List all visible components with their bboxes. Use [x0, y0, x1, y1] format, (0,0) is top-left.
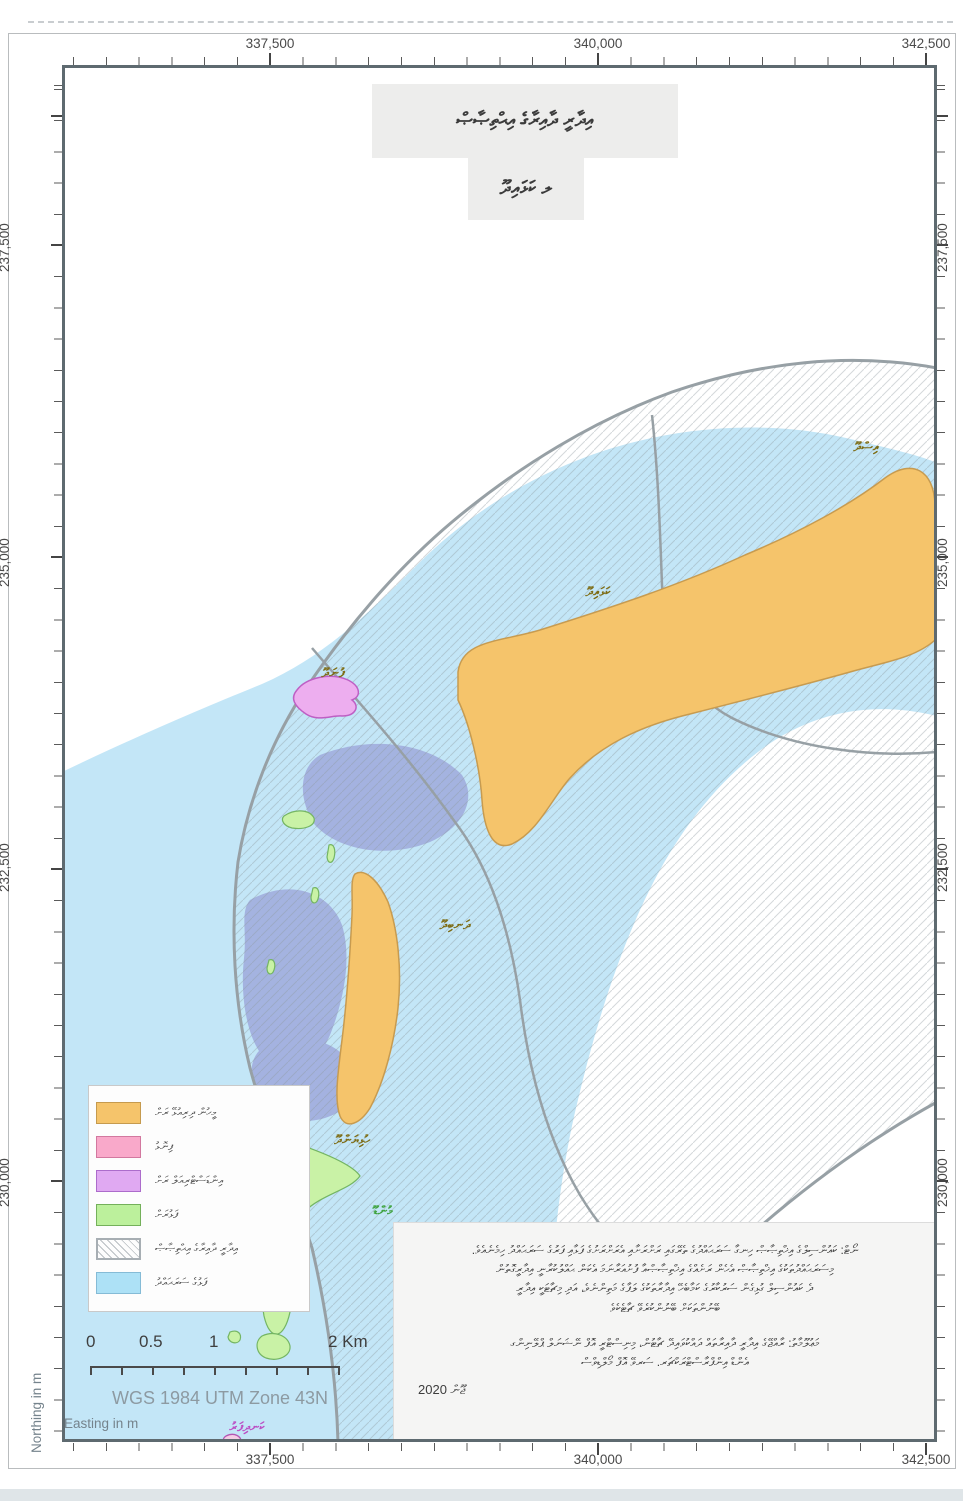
scale-tick-0: 0 [86, 1332, 95, 1352]
inhabited-island-swatch [96, 1102, 141, 1124]
note-line: ނޯޓް: ކައުންސިލްގެ އިޚްތިޞާޞް ހިނގާ ސަރަ… [416, 1241, 914, 1260]
island-label-mundoo: މުންޑޫ [373, 1203, 392, 1219]
easting-label-top-3: 342,500 [890, 36, 962, 51]
scale-bar-ticks [90, 1366, 341, 1375]
map-subtitle-box: ލ ކަޅައިދޫ [468, 158, 584, 220]
northing-label-right-2: 235,000 [935, 538, 950, 587]
legend-label: އިންޑަސްޓްރިއަލް ރަށް [155, 1175, 223, 1188]
island-label-hulhiyandhoo: ހުޅިޔަންދޫ [334, 1132, 370, 1148]
scale-tick-2km: 2 Km [328, 1332, 368, 1352]
northing-label-right-3: 232,500 [935, 843, 950, 892]
crs-label: WGS 1984 UTM Zone 43N [95, 1388, 345, 1409]
jurisdiction-swatch [96, 1238, 141, 1260]
source-line: އެންޑް އިންފްރާސްޓްރަކްޗަރ. ސަރވޭ އޮފް މ… [416, 1353, 914, 1372]
legend-label: ފަޅުގެ ސަރަޙައްދު [155, 1277, 207, 1290]
left-ruler-major-ticks [51, 65, 62, 1442]
northing-label-left-1: 237,500 [0, 223, 12, 272]
easting-axis-title: Easting in m [64, 1416, 138, 1431]
scale-tick-1: 1 [209, 1332, 218, 1352]
legend-label: އިދާރީ ދާއިރާގެ އިޙްތިޞާޞް [155, 1243, 238, 1256]
sandbank-swatch [96, 1136, 141, 1158]
island-label-isdhoo: އިސްދޫ [854, 439, 879, 455]
northing-axis-title: Northing in m [29, 1373, 44, 1453]
uninhabited-island-swatch [96, 1204, 141, 1226]
legend-item-lagoon: ފަޅުގެ ސަރަޙައްދު [96, 1266, 309, 1300]
bottom-ruler-major-ticks [62, 1443, 937, 1455]
window-bottom-strip [0, 1489, 963, 1501]
island-label-kalhaidhoo: ކަޅައިދޫ [586, 584, 611, 600]
easting-label-bottom-3: 342,500 [890, 1452, 962, 1467]
scale-tick-05: 0.5 [139, 1332, 163, 1352]
notes-panel: ނޯޓް: ކައުންސިލްގެ އިޚްތިޞާޞް ހިނގާ ސަރަ… [393, 1222, 937, 1442]
top-dashed-rule [28, 21, 953, 23]
legend-panel: މީހުން ދިރިއުޅޭ ރަށް ފިނޮޅު އިންޑަސްޓްރި… [88, 1085, 310, 1312]
legend-label: ފިނޮޅު [155, 1141, 173, 1154]
islet-kandifaru [223, 1434, 241, 1442]
easting-label-bottom-1: 337,500 [234, 1452, 306, 1467]
map-title-box: އިދާރީ ދާއިރާގެ އިޙްތިޞާޞް [372, 84, 678, 158]
map-title: އިދާރީ ދާއިރާގެ އިޙްތިޞާޞް [456, 110, 594, 132]
island-label-dhanbidhoo: ދަނބިދޫ [440, 917, 471, 933]
source-line: މަޢުލޫމާތު: ރާއްޖޭގެ އިދާރީ ދާއިރާތައް ދ… [416, 1334, 914, 1353]
note-line: ބޭނުންތަކަށް ބޭނުންކުރެވޭ ޗާޓެކެވެ [416, 1299, 914, 1318]
map-sheet: 337,500 340,000 342,500 337,500 340,000 … [0, 0, 963, 1501]
map-subtitle: ލ ކަޅައިދޫ [500, 178, 553, 200]
industrial-island-swatch [96, 1170, 141, 1192]
northing-label-right-1: 237,500 [935, 223, 950, 272]
legend-item-industrial-island: އިންޑަސްޓްރިއަލް ރަށް [96, 1164, 309, 1198]
note-line: ދެ ކައުންސިލް ގުޅިގެން ސަރުކާރުގެ ކަމާބެ… [416, 1279, 914, 1298]
lagoon-swatch [96, 1272, 141, 1294]
top-ruler-major-ticks [62, 53, 937, 65]
northing-label-left-3: 232,500 [0, 843, 12, 892]
legend-item-inhabited-island: މީހުން ދިރިއުޅޭ ރަށް [96, 1096, 309, 1130]
note-line: މިސަރަޙައްދުތަކުގެ އިޚްތިޞާޞް އެހެން ރަށ… [416, 1260, 914, 1279]
island-label-funadhoo: ފުނަދޫ [322, 665, 345, 681]
easting-label-top-2: 340,000 [562, 36, 634, 51]
island-label-kandifaru: ކަނދިފަރު [229, 1419, 264, 1435]
legend-label: ފަޅުރަށް [155, 1209, 178, 1222]
easting-label-bottom-2: 340,000 [562, 1452, 634, 1467]
legend-item-jurisdiction: އިދާރީ ދާއިރާގެ އިޙްތިޞާޞް [96, 1232, 309, 1266]
scale-bar: 0 0.5 1 2 Km [88, 1332, 388, 1382]
northing-label-left-4: 230,000 [0, 1158, 12, 1207]
map-date: ޖޫން 2020 [416, 1382, 914, 1398]
northing-label-right-4: 230,000 [935, 1158, 950, 1207]
northing-label-left-2: 235,000 [0, 538, 12, 587]
legend-label: މީހުން ދިރިއުޅޭ ރަށް [155, 1107, 216, 1120]
easting-label-top-1: 337,500 [234, 36, 306, 51]
legend-item-uninhabited-island: ފަޅުރަށް [96, 1198, 309, 1232]
legend-item-sandbank: ފިނޮޅު [96, 1130, 309, 1164]
